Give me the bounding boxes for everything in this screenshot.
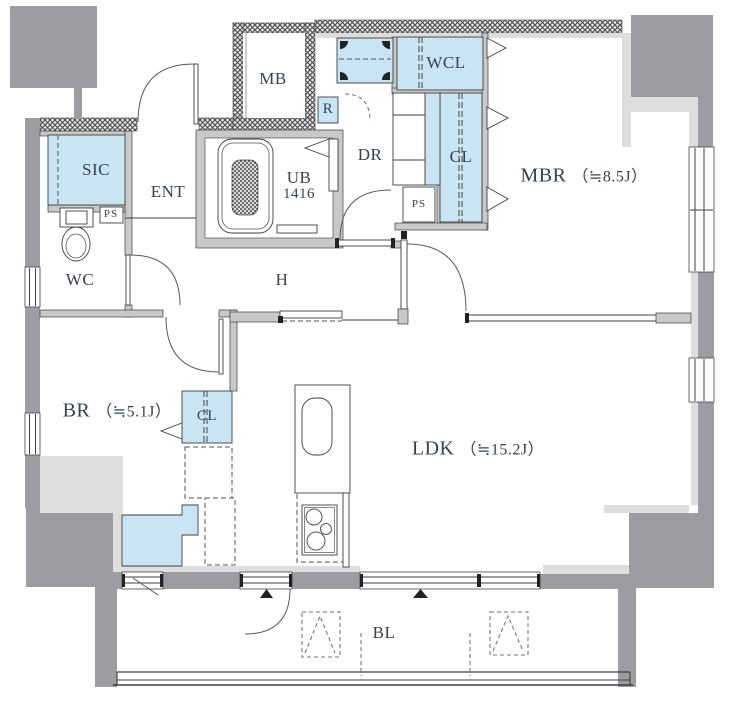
room-label-ub: UB1416 xyxy=(283,169,315,203)
room-label-balcony: BL xyxy=(373,624,396,642)
cl-br-door-swing-icon xyxy=(161,423,182,439)
storage-nook xyxy=(122,505,198,566)
kitchen xyxy=(295,385,350,567)
interior-walls xyxy=(40,33,691,391)
dr-service-door xyxy=(345,94,370,121)
wc-door xyxy=(126,255,180,305)
washing-machine-pan xyxy=(337,38,393,83)
counter-side-panel xyxy=(343,493,349,567)
closet-shelf xyxy=(425,93,440,185)
ac-unit-outline xyxy=(490,612,528,655)
room-label-br: BR（≒5.1J） xyxy=(63,401,172,422)
window-br xyxy=(25,413,40,455)
bathtub-mat xyxy=(232,160,258,215)
window-ldk-sliding xyxy=(360,572,540,589)
cl-door-swing-icon xyxy=(487,107,508,129)
room-label-mbr: MBR（≒8.5J） xyxy=(520,166,647,187)
wcl-door-swing-icon xyxy=(487,38,506,58)
room-label-cl-br: CL xyxy=(197,409,217,425)
room-label-refrigerator: R xyxy=(323,102,334,118)
room-label-wcl: WCL xyxy=(426,54,465,72)
room-label-sic: SIC xyxy=(82,161,110,179)
vanity-counter xyxy=(393,93,425,185)
window-wc xyxy=(25,267,40,307)
cl-door-swing-icon xyxy=(487,187,508,211)
room-label-ent: ENT xyxy=(151,183,186,201)
room-label-mb: MB xyxy=(259,70,286,88)
room-label-ps-dr: PS xyxy=(412,199,426,211)
mbr-door xyxy=(398,231,466,324)
room-label-cl-mbr: CL xyxy=(450,148,473,166)
balcony-access-marker-icon xyxy=(413,589,428,598)
window-balcony-door xyxy=(240,572,292,589)
br-door xyxy=(166,317,223,374)
bathroom xyxy=(196,130,343,248)
room-label-ps-wc: PS xyxy=(104,209,118,221)
bath-door xyxy=(329,139,338,191)
window-ldk-east xyxy=(689,358,714,402)
railing xyxy=(113,672,633,685)
room-label-ldk: LDK（≒15.2J） xyxy=(412,439,544,460)
kitchen-sink xyxy=(302,398,332,455)
floor-plan: MBR（≒8.5J） LDK（≒15.2J） BR（≒5.1J） WCL CL … xyxy=(0,0,733,707)
window-mbr-east xyxy=(689,147,714,272)
floor-plan-drawing xyxy=(0,0,733,707)
bath-counter xyxy=(277,225,317,233)
sliding-door-panel xyxy=(280,311,342,318)
ac-unit-outline xyxy=(302,612,340,657)
dr-door xyxy=(335,190,395,248)
room-label-dr: DR xyxy=(358,146,383,164)
balcony-access-marker-icon xyxy=(260,589,273,598)
toilet xyxy=(60,208,93,261)
room-label-hall: H xyxy=(276,271,289,289)
entrance-door xyxy=(138,64,198,124)
room-label-wc: WC xyxy=(66,271,94,289)
window-nook xyxy=(122,572,163,595)
